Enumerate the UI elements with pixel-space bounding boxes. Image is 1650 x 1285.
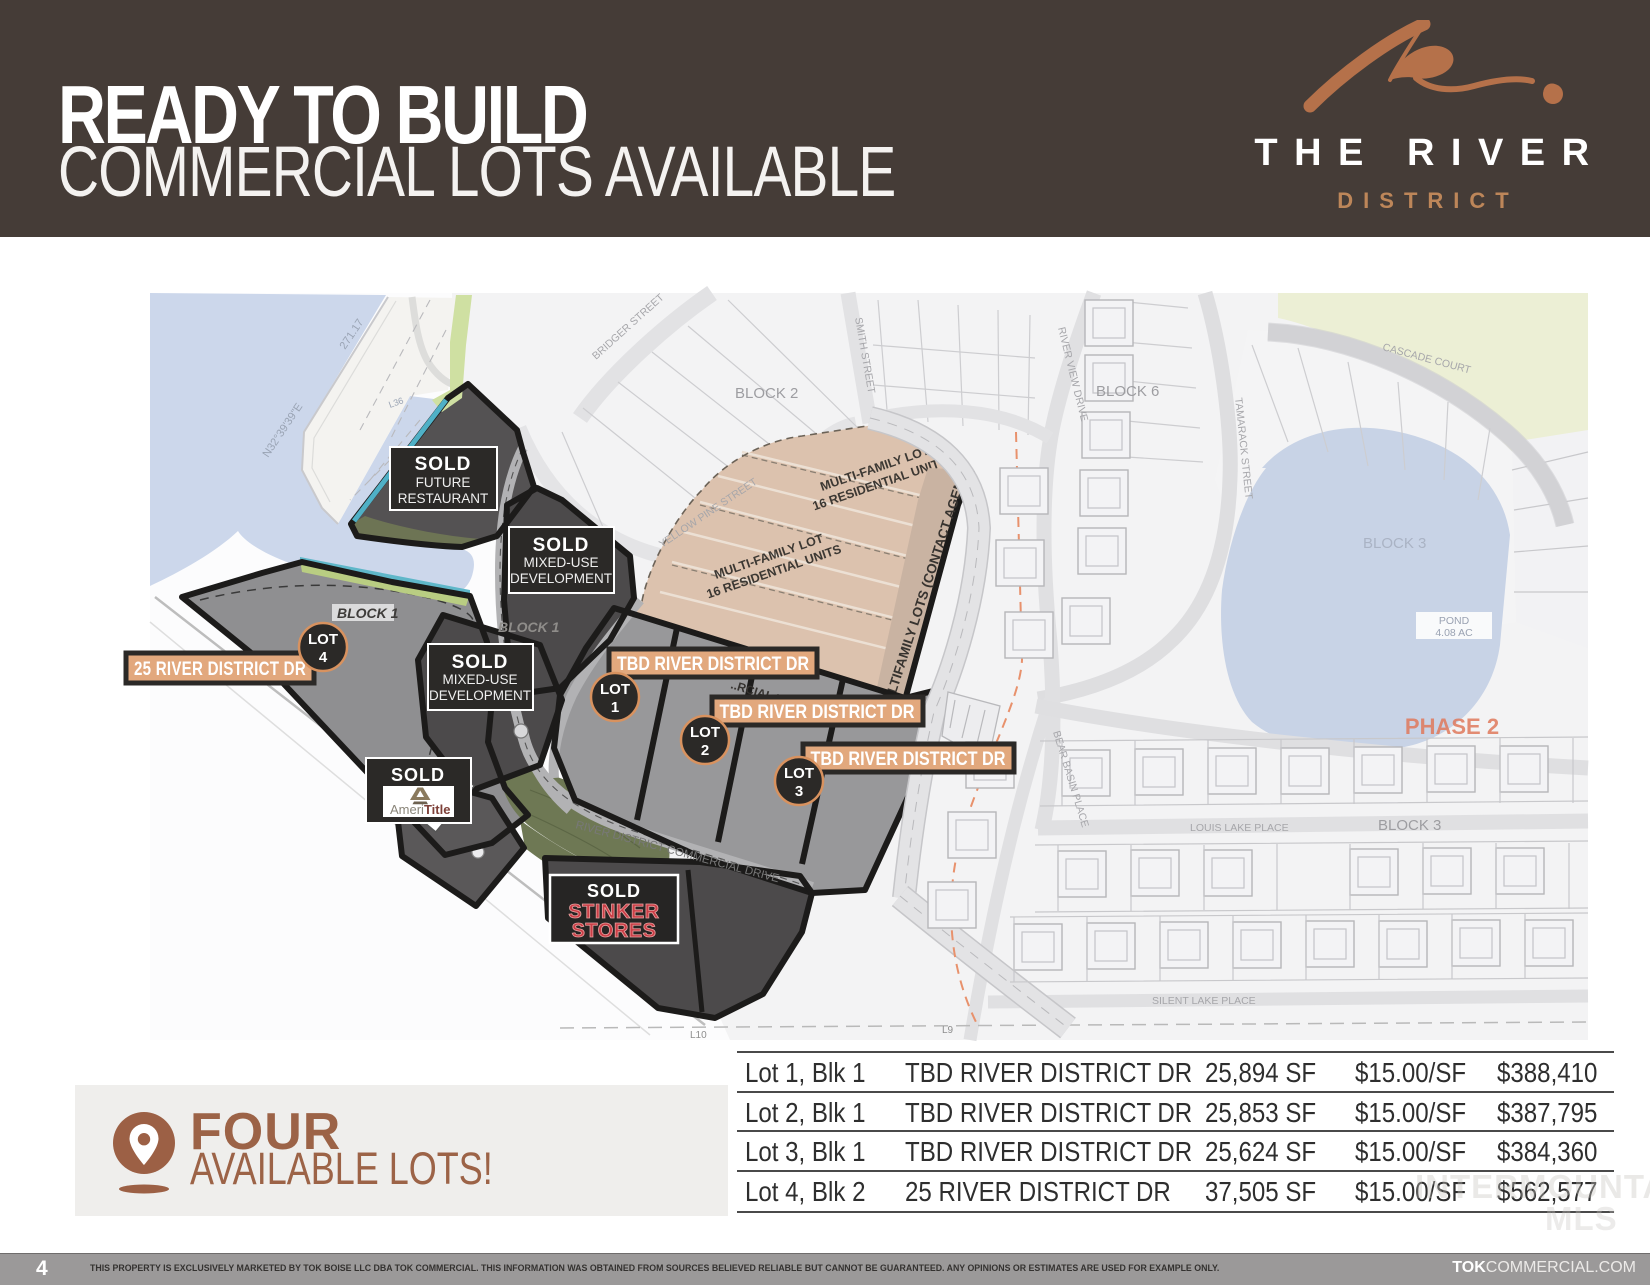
svg-text:BLOCK 3: BLOCK 3 xyxy=(1363,535,1426,552)
svg-text:BLOCK 1: BLOCK 1 xyxy=(337,605,399,621)
svg-text:4.08 AC: 4.08 AC xyxy=(1435,627,1473,639)
svg-text:DEVELOPMENT: DEVELOPMENT xyxy=(510,571,612,586)
svg-text:25 RIVER DISTRICT DR: 25 RIVER DISTRICT DR xyxy=(134,659,306,680)
svg-text:STORES: STORES xyxy=(572,920,657,942)
svg-text:L10: L10 xyxy=(690,1030,707,1041)
svg-text:BLOCK 1: BLOCK 1 xyxy=(498,619,560,635)
svg-text:PHASE 2: PHASE 2 xyxy=(1405,714,1499,739)
svg-text:LOT: LOT xyxy=(690,724,720,741)
svg-text:RESTAURANT: RESTAURANT xyxy=(398,491,489,506)
svg-text:2: 2 xyxy=(701,742,709,759)
svg-text:LOT: LOT xyxy=(308,631,338,648)
svg-text:SOLD: SOLD xyxy=(587,881,641,901)
svg-text:3: 3 xyxy=(795,783,803,800)
svg-text:SILENT LAKE PLACE: SILENT LAKE PLACE xyxy=(1152,995,1256,1007)
svg-text:LOT: LOT xyxy=(600,681,630,698)
svg-text:TBD RIVER DISTRICT DR: TBD RIVER DISTRICT DR xyxy=(617,654,809,675)
svg-text:SOLD: SOLD xyxy=(391,765,445,785)
svg-text:MIXED-USE: MIXED-USE xyxy=(442,672,517,687)
svg-text:4: 4 xyxy=(319,649,328,666)
svg-text:BLOCK 3: BLOCK 3 xyxy=(1378,817,1441,834)
svg-text:TBD RIVER DISTRICT DR: TBD RIVER DISTRICT DR xyxy=(720,702,915,723)
svg-text:BLOCK 2: BLOCK 2 xyxy=(735,385,798,402)
svg-text:TBD RIVER DISTRICT DR: TBD RIVER DISTRICT DR xyxy=(811,749,1006,770)
svg-text:L9: L9 xyxy=(942,1025,954,1036)
svg-text:AmeriTitle: AmeriTitle xyxy=(390,802,450,817)
svg-text:FUTURE: FUTURE xyxy=(416,475,471,490)
svg-text:1: 1 xyxy=(611,699,619,716)
svg-text:SOLD: SOLD xyxy=(415,454,472,475)
svg-text:SOLD: SOLD xyxy=(452,652,509,673)
svg-text:DEVELOPMENT: DEVELOPMENT xyxy=(429,688,531,703)
svg-text:POND: POND xyxy=(1439,615,1470,627)
svg-text:LOUIS LAKE PLACE: LOUIS LAKE PLACE xyxy=(1190,822,1289,834)
svg-text:BLOCK 6: BLOCK 6 xyxy=(1096,383,1159,400)
svg-text:MIXED-USE: MIXED-USE xyxy=(523,555,598,570)
svg-text:SOLD: SOLD xyxy=(533,535,590,556)
svg-text:LOT: LOT xyxy=(784,765,814,782)
